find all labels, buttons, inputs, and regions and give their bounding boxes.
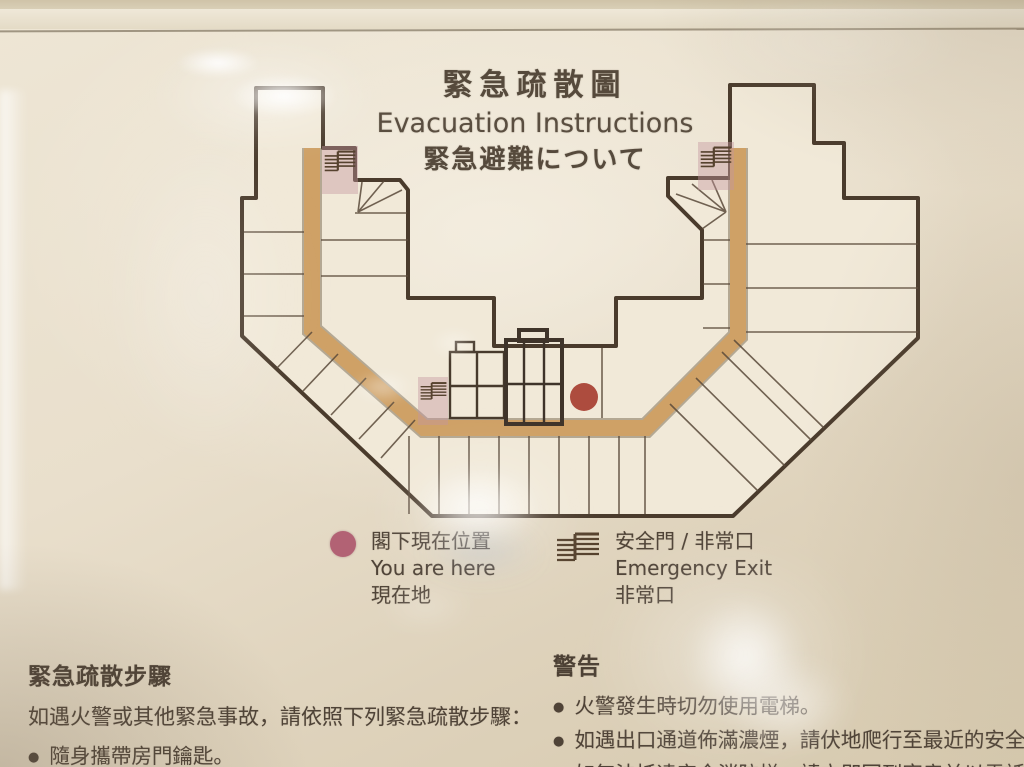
sign-frame-seam bbox=[0, 28, 1024, 33]
legend-you-are-here-zh: 閣下現在位置 bbox=[371, 528, 496, 555]
warnings-list: 火警發生時切勿使用電梯。 如遇出口通道佈滿濃煙，請伏地爬行至最近的安全門 如無法… bbox=[553, 690, 1024, 767]
legend-emergency-exit: 安全門 / 非常口 Emergency Exit 非常口 bbox=[556, 528, 772, 609]
warnings-heading: 警告 bbox=[553, 652, 1024, 682]
legend-emergency-exit-zh: 安全門 / 非常口 bbox=[615, 528, 772, 555]
sign-title-en: Evacuation Instructions bbox=[320, 106, 750, 142]
procedure-item: 隨身攜帶房門鑰匙。 bbox=[28, 740, 553, 767]
legend-emergency-exit-ja: 非常口 bbox=[615, 582, 772, 609]
warnings: 警告 火警發生時切勿使用電梯。 如遇出口通道佈滿濃煙，請伏地爬行至最近的安全門 … bbox=[553, 652, 1024, 767]
procedures-heading: 緊急疏散步驟 bbox=[28, 662, 553, 692]
exit-highlight-center bbox=[418, 377, 448, 425]
you-are-here-legend-dot bbox=[330, 531, 356, 557]
sign-title-zh: 緊急疏散圖 bbox=[320, 66, 750, 106]
procedures-intro: 如遇火警或其他緊急事故，請依照下列緊急疏散步驟： bbox=[28, 702, 553, 732]
sign-frame-top bbox=[0, 0, 1024, 9]
procedures-list: 隨身攜帶房門鑰匙。 bbox=[28, 740, 553, 767]
emergency-exit-icon bbox=[556, 532, 600, 562]
warning-item: 火警發生時切勿使用電梯。 bbox=[553, 690, 1024, 724]
evacuation-sign-photo: 緊急疏散圖 Evacuation Instructions 緊急避難について 閣… bbox=[0, 0, 1024, 767]
legend-emergency-exit-en: Emergency Exit bbox=[615, 555, 772, 582]
evacuation-procedures: 緊急疏散步驟 如遇火警或其他緊急事故，請依照下列緊急疏散步驟： 隨身攜帶房門鑰匙… bbox=[28, 662, 553, 767]
you-are-here-dot bbox=[570, 383, 598, 411]
sign-frame-bevel bbox=[0, 9, 1024, 29]
warning-item: 如無法抵達安全消防梯，請立即回到客房並以電話撥 bbox=[553, 758, 1024, 767]
legend-you-are-here: 閣下現在位置 You are here 現在地 bbox=[330, 528, 496, 609]
warning-item: 如遇出口通道佈滿濃煙，請伏地爬行至最近的安全門 bbox=[553, 724, 1024, 758]
legend-you-are-here-ja: 現在地 bbox=[371, 582, 496, 609]
legend-you-are-here-en: You are here bbox=[371, 555, 496, 582]
sign-title: 緊急疏散圖 Evacuation Instructions 緊急避難について bbox=[320, 66, 750, 178]
sign-title-ja: 緊急避難について bbox=[320, 142, 750, 178]
glare-highlight bbox=[0, 90, 26, 590]
